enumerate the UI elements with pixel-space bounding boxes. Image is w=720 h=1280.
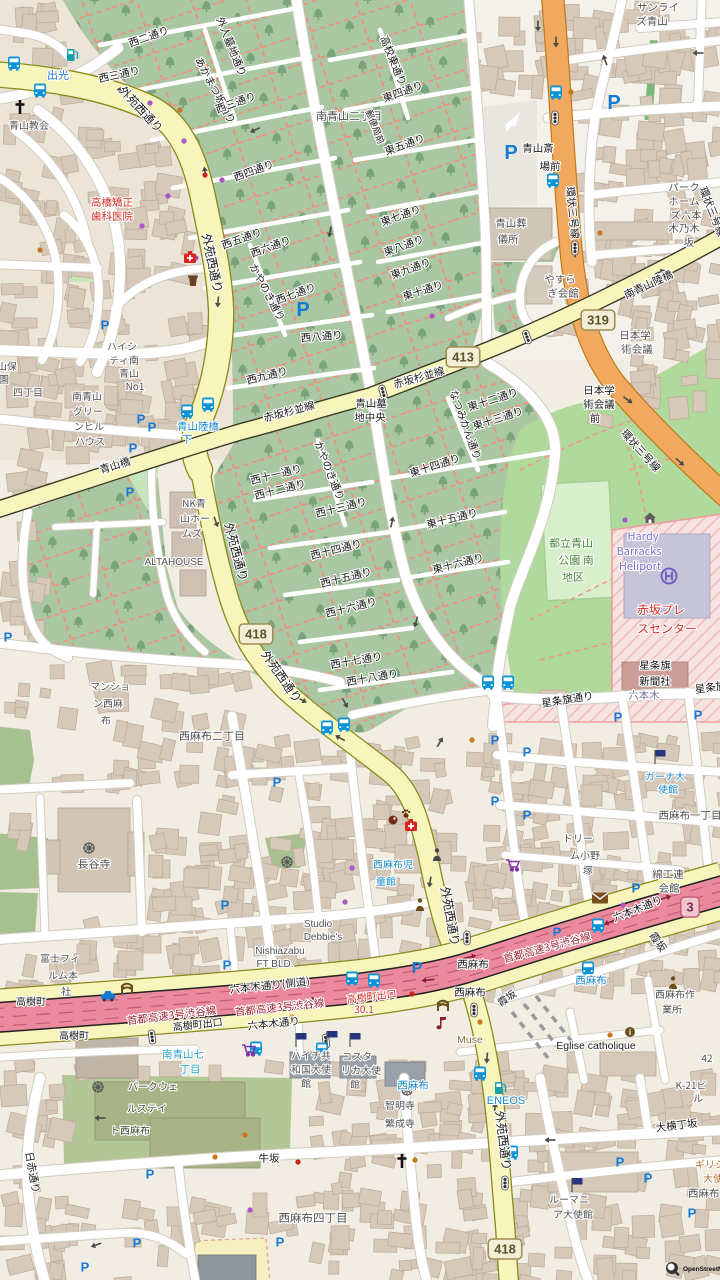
svg-text:P: P — [221, 898, 230, 913]
svg-text:P: P — [504, 142, 517, 164]
svg-text:OpenStreetMap: OpenStreetMap — [683, 1266, 720, 1273]
svg-text:P: P — [607, 92, 620, 114]
svg-text:418: 418 — [494, 1242, 516, 1257]
svg-text:418: 418 — [245, 627, 267, 642]
svg-text:P: P — [491, 733, 500, 748]
svg-text:P: P — [101, 318, 110, 333]
svg-text:P: P — [276, 1235, 285, 1250]
svg-text:Nishiazabu: Nishiazabu — [255, 946, 304, 957]
svg-text:P: P — [148, 420, 157, 435]
svg-text:Studio: Studio — [304, 919, 333, 930]
svg-text:413: 413 — [452, 350, 474, 365]
svg-text:P: P — [523, 808, 532, 823]
svg-text:P: P — [644, 1171, 653, 1186]
svg-text:P: P — [523, 745, 532, 760]
svg-text:P: P — [412, 960, 423, 977]
svg-text:P: P — [553, 925, 562, 940]
svg-text:Muse: Muse — [457, 1034, 483, 1046]
svg-text:3: 3 — [686, 900, 693, 915]
svg-text:Eglise catholique: Eglise catholique — [556, 1040, 636, 1052]
svg-text:P: P — [491, 794, 500, 809]
svg-text:P: P — [146, 1167, 155, 1182]
svg-text:319: 319 — [587, 313, 609, 328]
svg-text:P: P — [129, 441, 138, 456]
svg-text:P: P — [694, 708, 703, 723]
svg-text:i: i — [629, 1028, 631, 1037]
svg-text:P: P — [273, 775, 282, 790]
svg-text:P: P — [296, 299, 309, 321]
svg-text:Debbie's: Debbie's — [304, 932, 343, 943]
svg-text:P: P — [223, 958, 232, 973]
svg-text:P: P — [614, 710, 623, 725]
svg-text:ENEOS: ENEOS — [487, 1095, 526, 1107]
svg-text:P: P — [688, 1206, 697, 1221]
svg-text:P: P — [4, 630, 13, 645]
svg-text:P: P — [137, 412, 146, 427]
svg-text:P: P — [616, 1155, 625, 1170]
svg-text:P: P — [81, 1260, 90, 1275]
svg-text:FT BLD.: FT BLD. — [256, 959, 293, 970]
svg-text:ALTAHOUSE: ALTAHOUSE — [144, 557, 203, 568]
svg-text:P: P — [632, 881, 641, 896]
svg-text:P: P — [133, 1236, 142, 1251]
svg-text:P: P — [126, 485, 135, 500]
